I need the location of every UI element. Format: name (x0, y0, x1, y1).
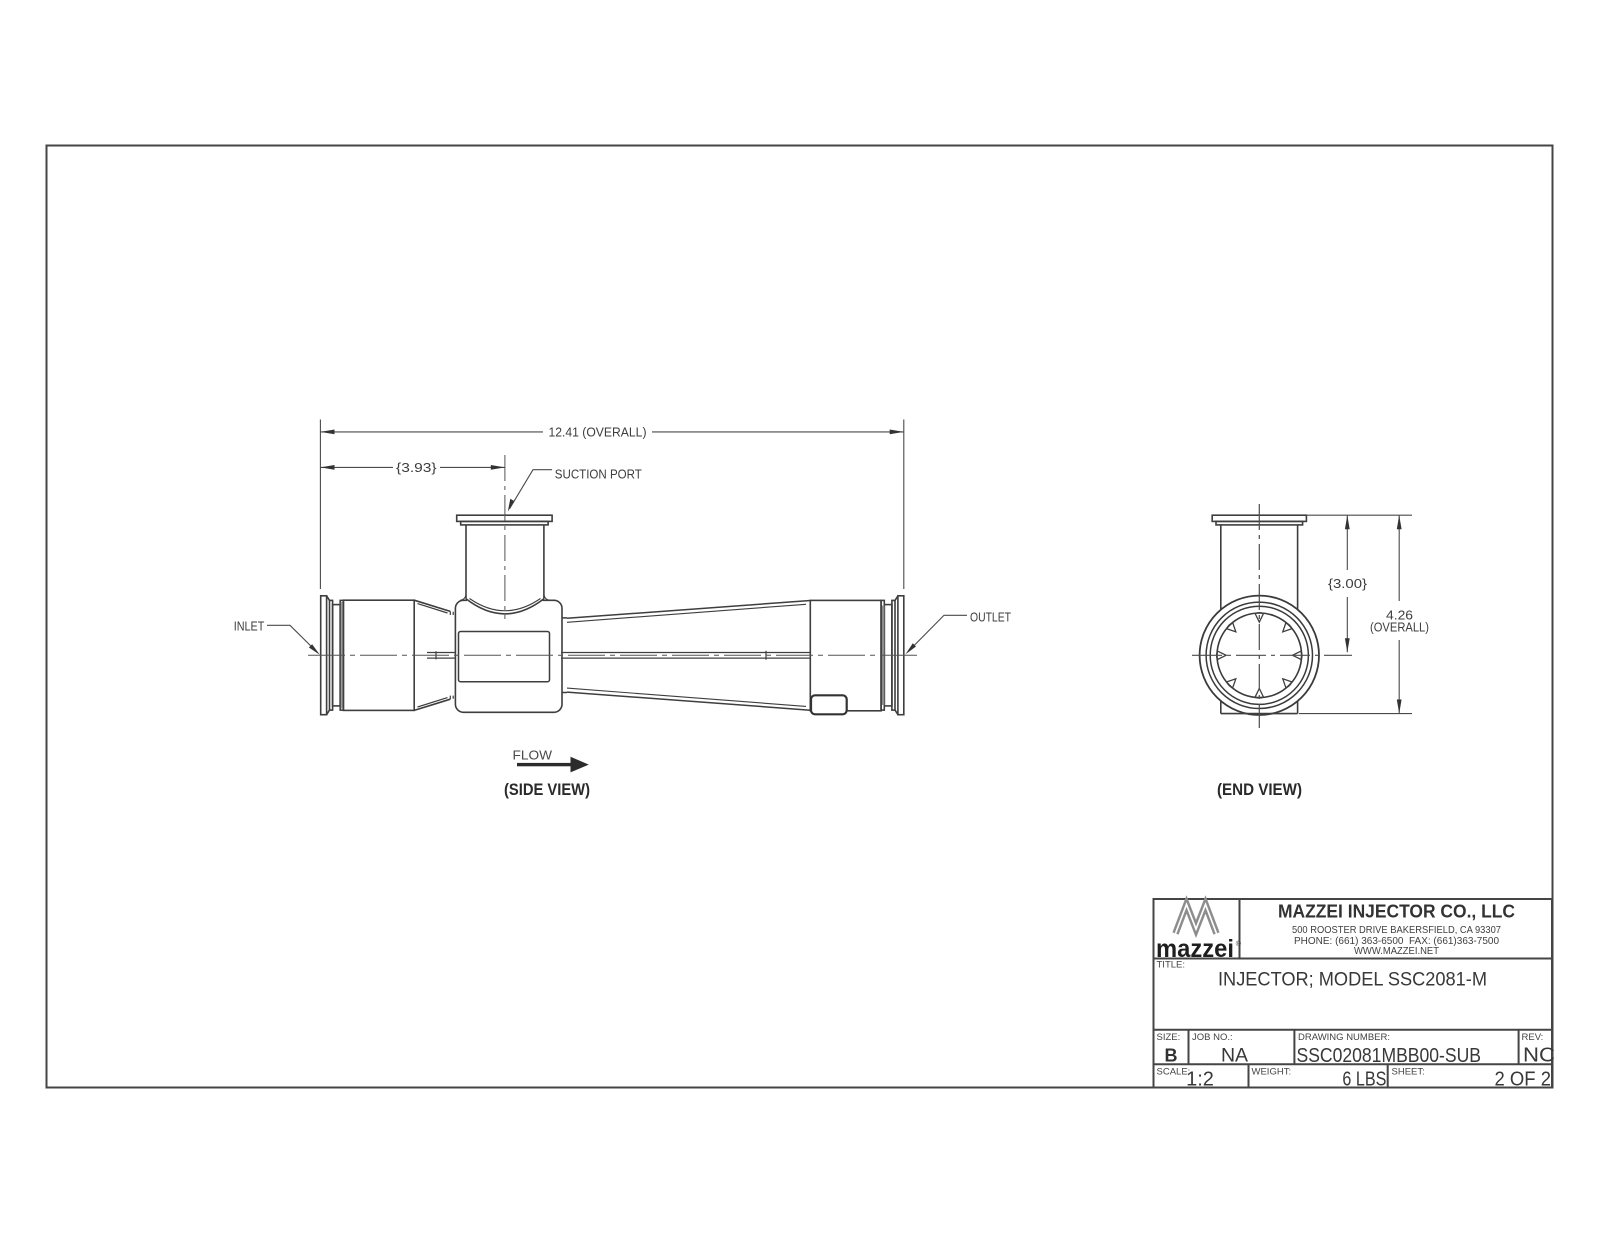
svg-text:DRAWING NUMBER:: DRAWING NUMBER: (1298, 1032, 1390, 1043)
svg-text:(OVERALL): (OVERALL) (1370, 621, 1429, 635)
svg-text:INLET: INLET (234, 619, 265, 634)
svg-text:B: B (1165, 1046, 1178, 1066)
svg-text:6 LBS: 6 LBS (1342, 1069, 1386, 1091)
svg-text:REV:: REV: (1522, 1032, 1544, 1043)
svg-text:(END VIEW): (END VIEW) (1217, 780, 1302, 799)
svg-text:{3.93}: {3.93} (396, 460, 437, 475)
svg-text:2 OF 2: 2 OF 2 (1495, 1069, 1552, 1091)
svg-text:1:2: 1:2 (1186, 1069, 1214, 1091)
svg-text:MAZZEI INJECTOR CO., LLC: MAZZEI INJECTOR CO., LLC (1278, 902, 1515, 922)
svg-text:SIZE:: SIZE: (1157, 1032, 1181, 1043)
svg-text:SSC02081MBB00-SUB: SSC02081MBB00-SUB (1297, 1045, 1482, 1067)
svg-text:WEIGHT:: WEIGHT: (1252, 1067, 1292, 1078)
svg-text:JOB NO.:: JOB NO.: (1192, 1032, 1233, 1043)
svg-text:12.41 (OVERALL): 12.41 (OVERALL) (549, 425, 647, 440)
svg-text:NC: NC (1523, 1045, 1555, 1067)
svg-text:FLOW: FLOW (513, 748, 553, 763)
svg-text:NA: NA (1221, 1045, 1248, 1067)
svg-text:INJECTOR; MODEL SSC2081-M: INJECTOR; MODEL SSC2081-M (1218, 970, 1487, 991)
svg-text:{3.00}: {3.00} (1328, 576, 1368, 591)
svg-text:(SIDE VIEW): (SIDE VIEW) (504, 780, 590, 799)
svg-text:OUTLET: OUTLET (970, 610, 1011, 625)
svg-text:SHEET:: SHEET: (1392, 1067, 1425, 1078)
svg-text:WWW.MAZZEI.NET: WWW.MAZZEI.NET (1354, 945, 1440, 957)
svg-text:TITLE:: TITLE: (1157, 960, 1186, 971)
svg-text:®: ® (1236, 940, 1242, 948)
svg-text:SUCTION PORT: SUCTION PORT (555, 467, 642, 482)
